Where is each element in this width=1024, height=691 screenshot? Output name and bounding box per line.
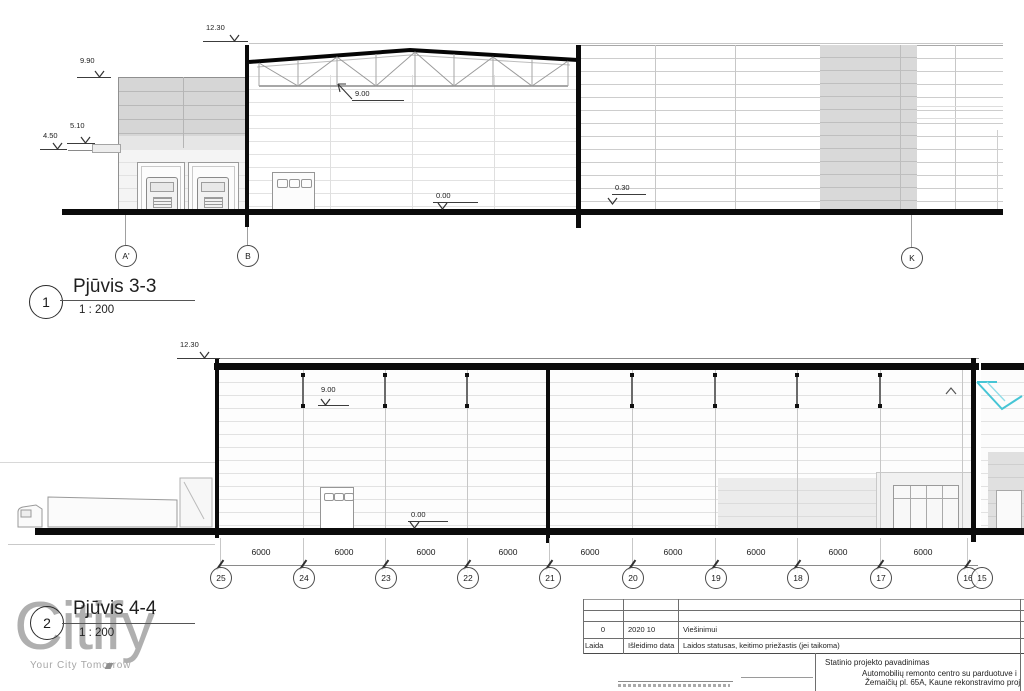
truck-front: [146, 177, 178, 211]
grid-bubble-k: K: [901, 247, 923, 269]
column-stub: [466, 375, 468, 406]
grid-bubble-21: 21: [539, 567, 561, 589]
ground-line-2: [35, 528, 1024, 535]
project-name-line2: Žemaičių pl. 65A, Kaune rekonstravimo pr…: [865, 678, 1020, 687]
section-wall-mid-2: [546, 367, 550, 543]
level-label: 12.30: [206, 24, 225, 32]
column-stub: [631, 375, 633, 406]
left-building-joint: [183, 77, 184, 148]
grid-bubble-24: 24: [293, 567, 315, 589]
title-rule: [62, 623, 195, 624]
grid-label: B: [245, 251, 251, 261]
dim-6000: 6000: [914, 547, 933, 557]
title-rule: [60, 300, 195, 301]
tb-hline: [583, 599, 1024, 600]
ground-line: [62, 209, 1003, 215]
section-wall-left-2: [215, 358, 219, 538]
door-window: [334, 493, 344, 501]
door-window: [301, 179, 312, 188]
grid-leader: [247, 227, 248, 245]
grid-label: 21: [545, 573, 554, 583]
grid-label: 23: [381, 573, 390, 583]
tb-hline: [583, 653, 1024, 654]
truck-windshield: [150, 182, 174, 192]
hall-column-line: [330, 75, 331, 209]
revision-status: Viešinimui: [683, 625, 717, 634]
col-header-date: Išleidimo data: [628, 641, 674, 650]
transom: [894, 498, 958, 499]
column-stub: [714, 375, 716, 406]
chevron-mark-icon: [944, 386, 958, 395]
grid-bubble-22: 22: [457, 567, 479, 589]
cyan-brace: [975, 377, 1024, 417]
grid-label: K: [909, 253, 915, 263]
grid-bubble-15: 15: [971, 567, 993, 589]
parapet-line: [214, 358, 979, 359]
door-window: [344, 493, 354, 501]
level-label: 0.00: [411, 511, 426, 519]
column-stub: [879, 375, 881, 406]
annex-roof-band: [981, 363, 1024, 370]
grid-label: 22: [463, 573, 472, 583]
stamp-line: [741, 677, 813, 678]
roof-band: [214, 363, 979, 370]
view-scale-2: 1 : 200: [79, 627, 114, 639]
grid-bubble-b: B: [237, 245, 259, 267]
truck-side: [14, 455, 219, 535]
dimension-line: [220, 565, 978, 566]
level-label: 0.30: [615, 184, 630, 192]
revision-number: 0: [583, 625, 623, 634]
grid-label: 19: [711, 573, 720, 583]
tb-vline: [678, 599, 679, 654]
truck-front: [197, 177, 229, 211]
mullion: [926, 486, 927, 530]
hall-column-line: [412, 75, 413, 209]
facade-joint: [955, 45, 956, 209]
level-label: 12.30: [180, 341, 199, 349]
facade-joint: [735, 45, 736, 209]
stamp-line: [618, 681, 733, 682]
grid-bubble-17: 17: [870, 567, 892, 589]
level-label: 9.00: [355, 90, 370, 98]
level-label: 5.10: [70, 122, 85, 130]
level-marker-12-30: 12.30: [203, 24, 248, 42]
grid-label: 15: [977, 573, 986, 583]
truck-windshield: [201, 182, 225, 192]
column-stub: [302, 375, 304, 406]
callout-number: 2: [43, 615, 51, 631]
tb-hline: [583, 621, 1024, 622]
grid-label: 24: [299, 573, 308, 583]
grid-bubble-19: 19: [705, 567, 727, 589]
grid-leader: [911, 215, 912, 247]
grid-bubble-23: 23: [375, 567, 397, 589]
door-window: [289, 179, 300, 188]
canopy: [92, 144, 121, 153]
dim-6000: 6000: [499, 547, 518, 557]
tb-vline: [623, 599, 624, 654]
truck-grille: [153, 197, 172, 208]
grid-label: 20: [628, 573, 637, 583]
tb-vline: [815, 653, 816, 691]
level-marker-0-30: 0.30: [612, 184, 646, 195]
facade-detail-line: [917, 118, 1003, 119]
citify-tagline: Your City Tomorrow: [30, 660, 131, 671]
dim-6000: 6000: [664, 547, 683, 557]
left-building-edge: [118, 77, 119, 209]
door-window: [324, 493, 334, 501]
col-header-status: Laidos statusas, keitimo priežastis (jei…: [683, 641, 840, 650]
view-title-2: Pjūvis 4-4: [73, 598, 156, 620]
view-scale-1: 1 : 200: [79, 304, 114, 316]
roof-truss: [247, 43, 580, 91]
dim-6000: 6000: [417, 547, 436, 557]
tb-hline: [583, 638, 1024, 639]
level-label: 9.00: [321, 386, 336, 394]
mullion: [942, 486, 943, 530]
stamp-microtext: [618, 684, 730, 687]
column-stub: [796, 375, 798, 406]
column-line: [962, 370, 963, 528]
title-block: 0 2020 10 Viešinimui Laida Išleidimo dat…: [583, 598, 1024, 691]
view-callout-2: 2: [30, 606, 64, 640]
hall-door: [272, 172, 315, 211]
level-marker-0-00: 0.00: [433, 192, 478, 203]
revision-date: 2020 10: [628, 625, 655, 634]
project-label: Statinio projekto pavadinimas: [825, 658, 930, 667]
view-callout-1: 1: [29, 285, 63, 319]
grid-leader: [125, 215, 126, 245]
door-window: [277, 179, 288, 188]
canopy-level-line: [68, 150, 92, 151]
dim-6000: 6000: [829, 547, 848, 557]
grid-bubble-25: 25: [210, 567, 232, 589]
level-label: 9.90: [80, 57, 95, 65]
facade-joint: [900, 45, 901, 209]
grid-label: 18: [793, 573, 802, 583]
grid-label: 17: [876, 573, 885, 583]
dim-6000: 6000: [252, 547, 271, 557]
drawing-sheet: Citify Your City Tomorrow: [0, 0, 1024, 691]
grid-bubble-a1: A': [115, 245, 137, 267]
col-header-laida: Laida: [585, 641, 603, 650]
facade-gray-block: [820, 45, 917, 209]
leader-arrow: [334, 80, 354, 100]
grid-bubble-18: 18: [787, 567, 809, 589]
tb-hline: [583, 610, 1024, 611]
dim-6000: 6000: [335, 547, 354, 557]
project-name-line1: Automobilių remonto centro su parduotuve…: [862, 669, 1017, 678]
view-title-1: Pjūvis 3-3: [73, 276, 156, 298]
mullion: [910, 486, 911, 530]
hall-door-2: [320, 487, 354, 531]
dim-6000: 6000: [581, 547, 600, 557]
ramp-line: [8, 544, 215, 545]
level-marker-5-10: 5.10: [67, 122, 95, 144]
facade-joint: [655, 45, 656, 209]
level-marker-4-50: 4.50: [40, 132, 67, 150]
level-marker-9-00-b: 9.00: [318, 386, 349, 406]
column-stub: [384, 375, 386, 406]
level-label: 4.50: [43, 132, 58, 140]
level-marker-9-90: 9.90: [77, 57, 111, 78]
facade-detail-line: [997, 130, 998, 209]
level-marker-0-00-b: 0.00: [408, 511, 448, 522]
grid-label: A': [122, 251, 129, 261]
truck-grille: [204, 197, 223, 208]
grid-label: 25: [216, 573, 225, 583]
callout-number: 1: [42, 294, 50, 310]
level-marker-9-00: 9.00: [352, 90, 404, 101]
grid-bubble-20: 20: [622, 567, 644, 589]
annex-door: [996, 490, 1022, 530]
facade-detail-line: [917, 106, 1003, 107]
hall-column-line: [494, 75, 495, 209]
glazed-entrance: [893, 485, 959, 531]
level-marker-12-30-b: 12.30: [177, 341, 220, 359]
level-label: 0.00: [436, 192, 451, 200]
dim-6000: 6000: [747, 547, 766, 557]
